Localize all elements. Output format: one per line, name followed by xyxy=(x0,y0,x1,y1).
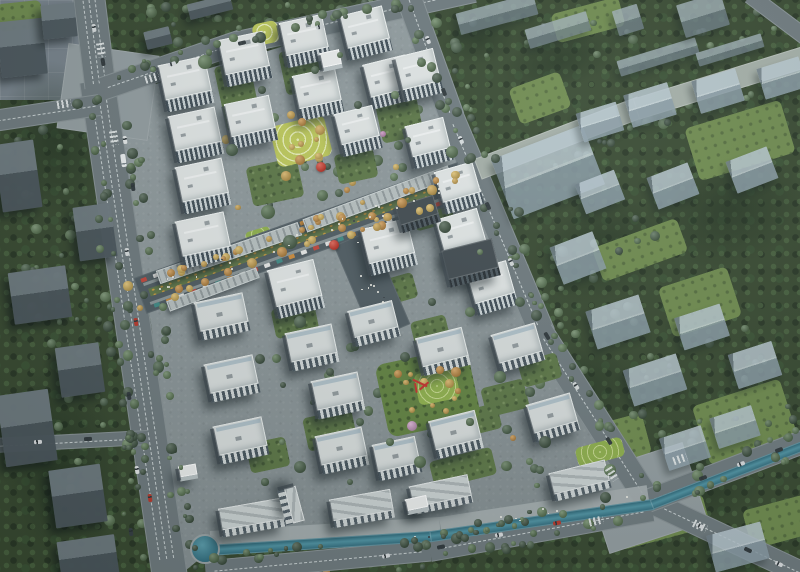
tree xyxy=(512,523,517,528)
pedestrian xyxy=(331,229,333,231)
pedestrian xyxy=(377,291,379,293)
roof-vent xyxy=(204,221,210,225)
roof-vent xyxy=(303,92,309,96)
context-building xyxy=(0,389,58,468)
pedestrian xyxy=(438,188,440,190)
autumn-tree xyxy=(201,278,209,286)
tree xyxy=(100,292,110,302)
tree xyxy=(127,148,137,158)
tree xyxy=(192,545,198,551)
road-lane-line xyxy=(82,0,94,84)
roof-vent xyxy=(187,184,193,188)
pedestrian xyxy=(542,508,544,510)
autumn-tree xyxy=(224,268,231,275)
tree xyxy=(167,492,173,498)
tree xyxy=(391,91,398,98)
ghost-massing-slab xyxy=(612,4,644,36)
tree xyxy=(558,344,567,353)
roof-vent xyxy=(251,104,257,108)
tree xyxy=(519,541,526,548)
autumn-tree xyxy=(455,388,461,394)
tree xyxy=(38,125,48,135)
tree xyxy=(72,99,82,109)
tree xyxy=(615,247,623,255)
tree xyxy=(485,542,495,552)
tree xyxy=(145,247,153,255)
car xyxy=(84,437,92,441)
pedestrian xyxy=(626,496,628,498)
tree xyxy=(123,350,134,361)
tree xyxy=(59,253,64,258)
roof-vent xyxy=(445,186,451,191)
tree xyxy=(463,104,470,111)
tree xyxy=(398,163,407,172)
roof-vent xyxy=(216,311,223,316)
tree xyxy=(294,461,306,473)
tree xyxy=(446,146,458,158)
tree xyxy=(502,425,511,434)
tree xyxy=(100,192,108,200)
autumn-tree xyxy=(344,187,350,193)
tree xyxy=(279,439,285,445)
tree xyxy=(166,392,174,400)
autumn-tree xyxy=(373,223,381,231)
tree xyxy=(597,139,602,144)
pedestrian xyxy=(556,510,558,512)
context-building xyxy=(55,342,106,398)
tree xyxy=(541,293,549,301)
tree xyxy=(420,564,425,569)
tree xyxy=(229,34,237,42)
autumn-tree xyxy=(298,118,305,125)
tree xyxy=(441,534,446,539)
tree xyxy=(139,193,148,202)
pedestrian xyxy=(382,215,384,217)
autumn-tree xyxy=(394,370,402,378)
tree xyxy=(354,101,362,109)
tree xyxy=(63,188,70,195)
tree xyxy=(173,37,183,47)
tree xyxy=(97,317,102,322)
pedestrian xyxy=(353,220,355,222)
roof-ridge xyxy=(276,273,309,283)
tree xyxy=(150,67,156,73)
roof-vent xyxy=(180,133,186,137)
shop-awning xyxy=(300,249,307,254)
tree xyxy=(571,330,579,338)
tree xyxy=(695,490,700,495)
tree xyxy=(261,205,275,219)
roof-vent xyxy=(345,129,351,134)
shop-awning xyxy=(288,254,295,259)
roof-ridge xyxy=(348,18,378,27)
tree xyxy=(65,230,76,241)
tree xyxy=(153,370,159,376)
roof-ridge xyxy=(232,108,264,117)
autumn-tree xyxy=(360,200,365,205)
roof-vent xyxy=(170,82,176,86)
tree xyxy=(163,371,171,379)
context-building xyxy=(8,265,73,325)
tree xyxy=(71,283,79,291)
tree xyxy=(172,525,179,532)
tree xyxy=(613,516,623,526)
roof-vent xyxy=(235,435,242,440)
tree xyxy=(137,433,146,442)
shop-awning xyxy=(264,262,271,267)
residential-tower xyxy=(175,158,232,215)
tree xyxy=(94,95,102,103)
roof-vent xyxy=(450,429,457,434)
tree xyxy=(595,421,604,430)
roof-vent xyxy=(416,141,422,146)
tree xyxy=(632,215,639,222)
tree xyxy=(696,463,704,471)
roof-vent xyxy=(295,269,301,274)
tree xyxy=(653,484,661,492)
tree xyxy=(477,249,483,255)
bus xyxy=(120,153,127,167)
tree xyxy=(147,231,155,239)
tree xyxy=(748,91,754,97)
tree xyxy=(634,238,641,245)
tree xyxy=(171,22,176,27)
roof-vent xyxy=(357,113,363,118)
roof-vent xyxy=(447,234,453,239)
roof-vent xyxy=(478,286,484,291)
pedestrian xyxy=(273,251,275,253)
autumn-tree xyxy=(295,155,305,165)
tree xyxy=(432,73,442,83)
tree xyxy=(178,50,182,54)
tree xyxy=(146,7,157,18)
tree xyxy=(784,433,793,442)
autumn-tree xyxy=(427,185,436,194)
autumn-tree xyxy=(318,214,324,220)
tree xyxy=(156,355,163,362)
tree xyxy=(161,2,171,12)
tree xyxy=(629,411,638,420)
tree xyxy=(184,503,191,510)
tree xyxy=(639,473,644,478)
tree xyxy=(111,251,116,256)
tree xyxy=(185,489,190,494)
tree xyxy=(272,354,281,363)
pedestrian xyxy=(296,234,298,236)
tree xyxy=(390,173,398,181)
tree xyxy=(103,321,113,331)
tree xyxy=(400,538,409,547)
tree xyxy=(128,65,136,73)
pedestrian xyxy=(251,250,253,252)
roof-ridge xyxy=(341,117,369,126)
tree xyxy=(638,409,648,419)
tree xyxy=(491,154,500,163)
tree xyxy=(120,320,130,330)
tree xyxy=(115,262,123,270)
pedestrian xyxy=(229,262,231,264)
tree xyxy=(164,362,169,367)
tree xyxy=(122,121,132,131)
tree xyxy=(494,371,506,383)
tree xyxy=(268,548,273,553)
tree xyxy=(536,466,544,474)
tree xyxy=(119,399,127,407)
roof-vent xyxy=(196,116,202,120)
roof-vent xyxy=(428,125,434,130)
autumn-tree xyxy=(308,236,316,244)
tree xyxy=(280,382,286,388)
tree xyxy=(209,553,218,562)
tree xyxy=(54,422,63,431)
roof-vent xyxy=(365,15,371,20)
tree xyxy=(283,235,296,248)
roof-vent xyxy=(368,318,375,323)
tree xyxy=(628,35,637,44)
tree xyxy=(452,68,458,74)
roof-vent xyxy=(374,80,380,85)
tree xyxy=(75,317,80,322)
context-building xyxy=(48,464,108,529)
roof-vent xyxy=(406,73,412,78)
roof-vent xyxy=(280,288,286,293)
ghost-massing-slab xyxy=(676,0,730,38)
tree xyxy=(742,446,752,456)
tree xyxy=(285,2,290,7)
ghost-massing-gable-building xyxy=(691,68,745,114)
autumn-tree xyxy=(289,144,295,150)
pedestrian xyxy=(438,192,440,194)
autumn-tree xyxy=(451,367,460,376)
roof-vent xyxy=(332,390,339,395)
tree xyxy=(600,504,605,509)
tree xyxy=(140,554,146,560)
tree xyxy=(414,30,423,39)
tree xyxy=(356,418,364,426)
road-center-line xyxy=(87,0,99,83)
tree xyxy=(183,514,187,518)
aerial-masterplan-render xyxy=(0,0,800,572)
roof-ridge xyxy=(177,120,210,129)
context-building xyxy=(0,18,48,79)
roof-vent xyxy=(437,346,444,351)
tree xyxy=(593,51,600,58)
pedestrian xyxy=(373,285,375,287)
roof-vent xyxy=(187,238,193,242)
autumn-tree xyxy=(281,171,290,180)
roof-ridge xyxy=(184,225,219,234)
tree xyxy=(122,512,126,516)
tree xyxy=(494,230,500,236)
roof-ridge xyxy=(300,80,331,88)
tree xyxy=(47,339,56,348)
pedestrian xyxy=(428,536,430,538)
tree xyxy=(781,459,787,465)
roof-ridge xyxy=(226,44,258,53)
autumn-tree xyxy=(397,198,406,207)
car xyxy=(34,440,42,444)
tree xyxy=(335,189,343,197)
context-building xyxy=(56,534,119,572)
roof-vent xyxy=(512,342,519,347)
tree xyxy=(332,10,341,19)
shop-awning xyxy=(276,258,283,263)
roof-vent xyxy=(306,342,313,347)
tree xyxy=(525,387,534,396)
ghost-massing-gable-building xyxy=(622,353,687,406)
pedestrian xyxy=(375,205,377,207)
autumn-tree xyxy=(403,380,408,385)
tree xyxy=(607,139,614,146)
tree xyxy=(484,53,489,58)
tree xyxy=(101,141,106,146)
tree xyxy=(602,140,607,145)
roof-vent xyxy=(318,76,324,80)
tree xyxy=(789,415,797,423)
roof-vent xyxy=(547,412,554,417)
tree xyxy=(179,465,184,470)
tree xyxy=(424,542,431,549)
tree xyxy=(451,42,462,53)
tree xyxy=(519,244,529,254)
roof-vent xyxy=(230,57,236,61)
tree xyxy=(95,215,103,223)
tree xyxy=(84,298,89,303)
tree xyxy=(473,127,480,134)
tree xyxy=(386,438,394,446)
tree xyxy=(465,84,470,89)
autumn-tree xyxy=(186,285,193,292)
autumn-tree xyxy=(201,261,207,267)
pedestrian xyxy=(369,277,371,279)
pedestrian xyxy=(382,301,384,303)
tree xyxy=(502,546,510,554)
tree xyxy=(100,422,106,428)
tree xyxy=(741,325,749,333)
pedestrian xyxy=(413,200,415,202)
tree xyxy=(91,146,99,154)
road-lane-line xyxy=(93,0,105,83)
ghost-massing-slab xyxy=(616,37,699,76)
tree xyxy=(130,399,139,408)
tree xyxy=(664,119,671,126)
tree xyxy=(166,443,176,453)
tree xyxy=(167,456,171,460)
tree xyxy=(647,353,654,360)
tree xyxy=(607,425,615,433)
tree xyxy=(391,5,398,12)
autumn-tree xyxy=(213,254,219,260)
autumn-tree xyxy=(409,187,415,193)
tree xyxy=(133,200,139,206)
tree xyxy=(274,552,279,557)
tree xyxy=(198,55,211,68)
tree xyxy=(226,144,238,156)
tree xyxy=(31,224,42,235)
roof-ridge xyxy=(369,232,402,242)
tree xyxy=(284,546,289,551)
context-building xyxy=(40,2,77,39)
roof-vent xyxy=(373,245,379,250)
tree xyxy=(467,114,475,122)
pedestrian xyxy=(370,284,372,286)
tree xyxy=(501,461,511,471)
roof-vent xyxy=(290,39,296,43)
tree xyxy=(431,18,441,28)
roof-vent xyxy=(351,31,357,36)
context-building xyxy=(143,26,173,50)
tree xyxy=(534,483,540,489)
tree xyxy=(291,23,300,32)
tree xyxy=(417,58,426,67)
roof-vent xyxy=(461,217,467,222)
ghost-massing-gable-building xyxy=(576,102,625,143)
tree xyxy=(193,565,198,570)
autumn-tree xyxy=(409,407,415,413)
tree xyxy=(96,245,104,253)
autumn-tree xyxy=(308,225,313,230)
roof-vent xyxy=(203,167,209,171)
tree xyxy=(557,322,564,329)
roof-ridge xyxy=(412,129,440,138)
tree xyxy=(785,404,790,409)
pedestrian xyxy=(168,286,170,288)
red-sphere-sculpture xyxy=(329,240,339,250)
tree xyxy=(554,308,562,316)
pedestrian xyxy=(378,206,380,208)
tree xyxy=(771,26,776,31)
tree xyxy=(141,443,149,451)
tree xyxy=(508,245,517,254)
red-sphere-sculpture xyxy=(316,162,326,172)
roof-vent xyxy=(226,373,233,378)
autumn-tree xyxy=(403,188,409,194)
tree xyxy=(126,445,131,450)
tree xyxy=(452,107,462,117)
pedestrian xyxy=(458,181,460,183)
tree xyxy=(261,478,268,485)
pedestrian xyxy=(360,275,362,277)
tree xyxy=(569,376,575,382)
tree xyxy=(128,478,134,484)
tree xyxy=(396,567,402,572)
autumn-tree xyxy=(445,379,454,388)
tree xyxy=(252,36,259,43)
tree xyxy=(445,98,452,105)
shop-awning xyxy=(313,245,320,250)
tree xyxy=(306,15,313,22)
tree xyxy=(771,453,780,462)
residential-tower xyxy=(168,107,225,164)
autumn-tree xyxy=(235,205,240,210)
tree xyxy=(527,541,535,549)
tree xyxy=(707,481,714,488)
ghost-massing-gable-building xyxy=(585,294,651,349)
tree xyxy=(148,351,154,357)
tree xyxy=(720,476,727,483)
roof-ridge xyxy=(167,69,200,78)
car xyxy=(128,528,133,536)
autumn-tree xyxy=(175,285,183,293)
tree xyxy=(89,113,96,120)
roof-vent xyxy=(388,228,394,233)
tree xyxy=(106,347,115,356)
roof-vent xyxy=(392,453,399,458)
tree xyxy=(600,492,611,503)
tree xyxy=(554,530,560,536)
autumn-tree xyxy=(510,435,516,441)
residential-tower xyxy=(224,95,279,150)
